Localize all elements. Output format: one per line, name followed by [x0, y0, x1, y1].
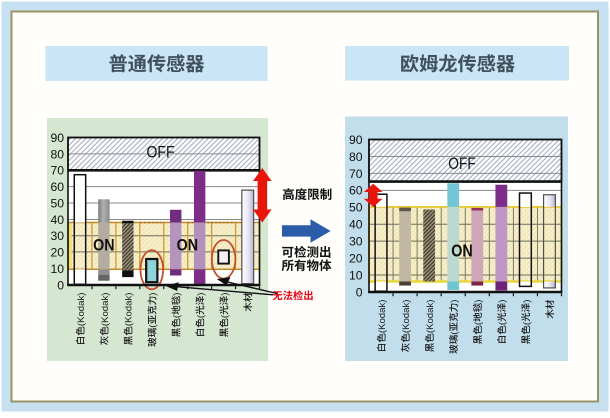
svg-text:): ): [449, 299, 460, 302]
svg-text:ON: ON: [451, 240, 473, 260]
svg-text:(Kodak): (Kodak): [100, 293, 111, 327]
svg-text:OFF: OFF: [448, 155, 476, 173]
svg-text:): ): [473, 299, 484, 302]
svg-text:10: 10: [349, 268, 363, 282]
svg-text:(Kodak): (Kodak): [76, 293, 87, 327]
svg-text:ON: ON: [177, 236, 198, 255]
svg-text:80: 80: [349, 150, 363, 164]
svg-text:90: 90: [50, 131, 64, 145]
svg-text:ON: ON: [93, 236, 114, 255]
svg-text:): ): [497, 299, 508, 302]
svg-text:0: 0: [57, 278, 64, 292]
svg-text:40: 40: [50, 213, 64, 227]
svg-text:): ): [148, 292, 159, 295]
svg-text:80: 80: [50, 147, 64, 161]
svg-text:70: 70: [349, 167, 363, 181]
svg-text:): ): [219, 292, 230, 295]
svg-text:(Kodak): (Kodak): [401, 300, 412, 334]
svg-text:20: 20: [50, 246, 64, 260]
svg-text:(Kodak): (Kodak): [377, 300, 388, 334]
svg-text:): ): [521, 299, 532, 302]
svg-text:): ): [172, 292, 183, 295]
svg-text:60: 60: [50, 180, 64, 194]
svg-text:60: 60: [349, 184, 363, 198]
svg-text:30: 30: [50, 229, 64, 243]
svg-text:(Kodak): (Kodak): [425, 300, 436, 334]
svg-text:): ): [196, 292, 207, 295]
svg-text:OFF: OFF: [147, 143, 175, 161]
svg-text:30: 30: [349, 235, 363, 249]
svg-text:50: 50: [349, 201, 363, 215]
svg-text:70: 70: [50, 164, 64, 178]
svg-text:90: 90: [349, 133, 363, 147]
svg-text:0: 0: [356, 285, 363, 299]
svg-text:50: 50: [50, 196, 64, 210]
svg-text:10: 10: [50, 262, 64, 276]
svg-text:40: 40: [349, 218, 363, 232]
svg-text:(Kodak): (Kodak): [124, 293, 135, 327]
svg-text:20: 20: [349, 252, 363, 266]
